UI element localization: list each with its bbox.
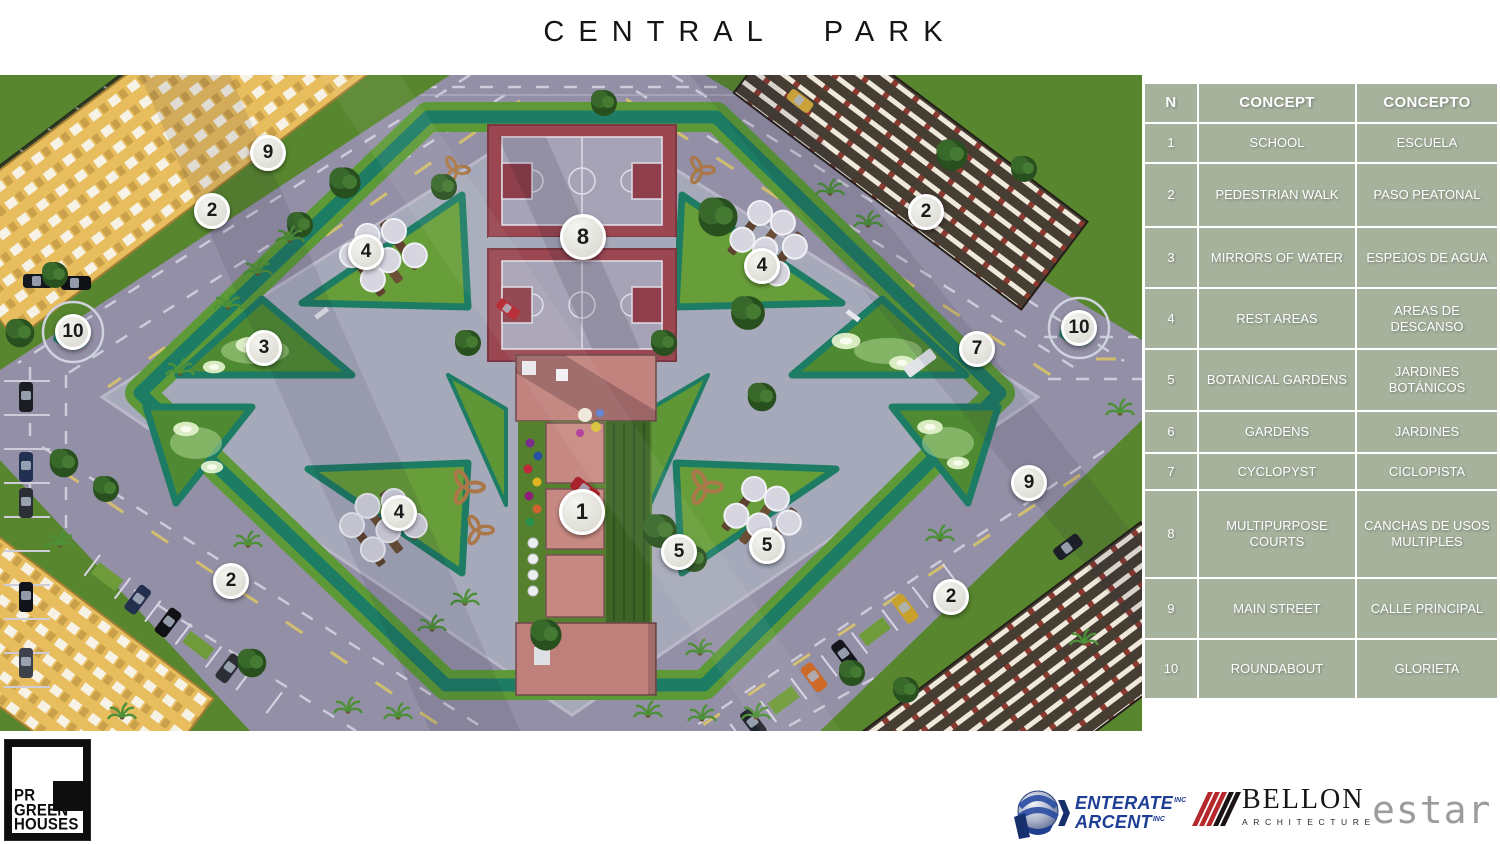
legend-cell-concepto: PASO PEATONAL <box>1357 164 1497 226</box>
legend-cell-concepto: GLORIETA <box>1357 640 1497 698</box>
legend-cell-concepto: ESPEJOS DE AGUA <box>1357 228 1497 287</box>
map-marker-5: 5 <box>661 534 697 570</box>
map-marker-10: 10 <box>55 314 91 350</box>
map-marker-4: 4 <box>348 234 384 270</box>
legend-cell-concept: MULTIPURPOSE COURTS <box>1199 491 1355 577</box>
legend-cell-concept: PEDESTRIAN WALK <box>1199 164 1355 226</box>
legend-cell-concept: REST AREAS <box>1199 289 1355 348</box>
legend-cell-n: 2 <box>1145 164 1197 226</box>
map-marker-4: 4 <box>381 495 417 531</box>
map-marker-9: 9 <box>250 135 286 171</box>
slide-page: CENTRAL PARK <box>0 0 1500 844</box>
legend-cell-n: 3 <box>1145 228 1197 287</box>
legend-cell-concept: BOTANICAL GARDENS <box>1199 350 1355 410</box>
site-plan-map: 9 2 4 8 4 2 10 3 7 10 4 1 5 5 9 2 2 <box>0 75 1142 731</box>
map-marker-5: 5 <box>749 528 785 564</box>
map-marker-10: 10 <box>1061 310 1097 346</box>
legend-cell-concept: GARDENS <box>1199 412 1355 452</box>
map-marker-2: 2 <box>908 194 944 230</box>
enterate-arcent-logo: ENTERATEINC ARCENTINC <box>1012 784 1186 842</box>
legend-header-concepto: CONCEPTO <box>1357 84 1497 122</box>
legend-cell-concepto: ESCUELA <box>1357 124 1497 162</box>
map-marker-2: 2 <box>194 193 230 229</box>
estar-logo: estar <box>1372 788 1491 832</box>
legend-cell-n: 1 <box>1145 124 1197 162</box>
legend-cell-n: 4 <box>1145 289 1197 348</box>
legend-cell-concept: CYCLOPYST <box>1199 454 1355 489</box>
legend-cell-n: 7 <box>1145 454 1197 489</box>
bellon-architecture-logo: BELLON ARCHITECTURE <box>1190 786 1376 828</box>
roof-icon <box>1190 786 1242 828</box>
legend-table: N CONCEPT CONCEPTO 1 SCHOOL ESCUELA 2 PE… <box>1143 82 1499 700</box>
legend-cell-concepto: CALLE PRINCIPAL <box>1357 579 1497 638</box>
enterate-text: ENTERATEINC ARCENTINC <box>1075 794 1186 832</box>
legend-cell-concept: SCHOOL <box>1199 124 1355 162</box>
globe-icon <box>1012 787 1064 839</box>
legend-cell-concepto: JARDINES BOTÁNICOS <box>1357 350 1497 410</box>
map-marker-9: 9 <box>1011 465 1047 501</box>
pr-greenhouses-logo: PR GREEN HOUSES <box>5 740 90 840</box>
map-marker-2: 2 <box>213 563 249 599</box>
map-marker-2: 2 <box>933 579 969 615</box>
legend-cell-n: 9 <box>1145 579 1197 638</box>
legend-cell-n: 10 <box>1145 640 1197 698</box>
page-title: CENTRAL PARK <box>0 16 1500 49</box>
legend-cell-concept: MAIN STREET <box>1199 579 1355 638</box>
bellon-text: BELLON ARCHITECTURE <box>1242 786 1376 827</box>
legend-cell-concepto: AREAS DE DESCANSO <box>1357 289 1497 348</box>
legend-cell-n: 5 <box>1145 350 1197 410</box>
legend-cell-concepto: JARDINES <box>1357 412 1497 452</box>
legend-header-n: N <box>1145 84 1197 122</box>
legend-cell-concept: ROUNDABOUT <box>1199 640 1355 698</box>
site-plan-render <box>0 75 1142 731</box>
legend-cell-n: 8 <box>1145 491 1197 577</box>
legend-cell-concept: MIRRORS OF WATER <box>1199 228 1355 287</box>
legend-cell-concepto: CANCHAS DE USOS MULTIPLES <box>1357 491 1497 577</box>
legend-header-concept: CONCEPT <box>1199 84 1355 122</box>
map-marker-3: 3 <box>246 330 282 366</box>
pr-logo-text: PR GREEN HOUSES <box>14 790 79 833</box>
map-marker-8: 8 <box>560 214 606 260</box>
map-marker-7: 7 <box>959 331 995 367</box>
map-marker-1: 1 <box>559 489 605 535</box>
map-marker-4: 4 <box>744 248 780 284</box>
legend-cell-concepto: CICLOPISTA <box>1357 454 1497 489</box>
legend-cell-n: 6 <box>1145 412 1197 452</box>
